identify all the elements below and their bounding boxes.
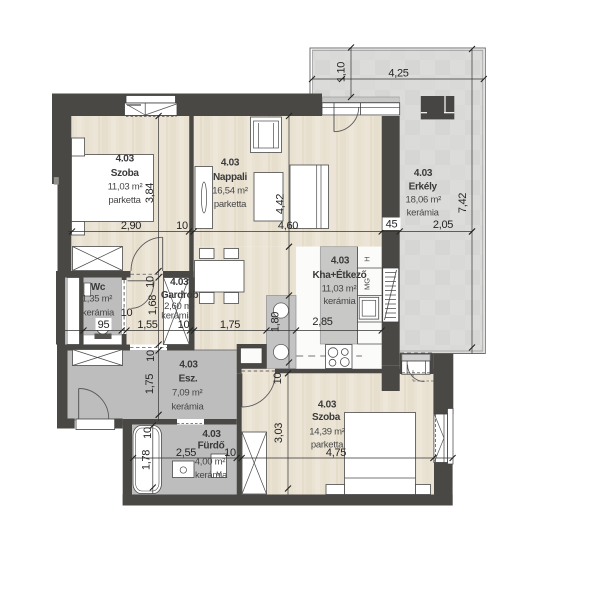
svg-text:kerámia: kerámia [323,296,356,307]
svg-text:1,35 m²: 1,35 m² [82,294,113,305]
svg-text:10: 10 [121,307,133,319]
svg-text:11,03 m²: 11,03 m² [108,182,143,193]
svg-text:parketta: parketta [311,440,344,451]
svg-text:H: H [363,256,372,261]
svg-text:4.03: 4.03 [221,158,240,169]
svg-text:4.03: 4.03 [170,277,189,288]
svg-text:4,00 m²: 4,00 m² [195,457,226,468]
svg-text:18,06 m²: 18,06 m² [406,195,442,206]
svg-text:Szoba: Szoba [111,168,140,179]
svg-text:1,80: 1,80 [270,312,282,332]
svg-text:kerámia: kerámia [171,402,204,413]
svg-text:parketta: parketta [108,195,141,206]
svg-text:Gardrób: Gardrób [161,290,199,301]
svg-text:kerámia: kerámia [161,311,194,322]
svg-text:4,25: 4,25 [388,68,408,80]
svg-text:4,60: 4,60 [278,220,298,232]
svg-text:2,05: 2,05 [433,219,453,231]
svg-text:3,84: 3,84 [144,183,156,203]
svg-text:10: 10 [145,350,157,362]
svg-text:1,75: 1,75 [220,319,240,331]
svg-text:Wc: Wc [91,282,106,293]
svg-text:2,85: 2,85 [312,316,332,328]
svg-text:4.03: 4.03 [179,360,198,371]
svg-text:3,03: 3,03 [273,423,285,443]
svg-text:1,68: 1,68 [147,295,159,315]
svg-text:Nappali: Nappali [213,172,248,183]
svg-text:1,10: 1,10 [336,62,348,82]
svg-text:4,42: 4,42 [275,194,287,214]
svg-text:45: 45 [386,219,398,231]
svg-text:Erkély: Erkély [409,182,438,193]
svg-text:Szoba: Szoba [312,412,341,423]
svg-text:7,09 m²: 7,09 m² [172,388,203,399]
svg-text:Esz.: Esz. [179,374,198,385]
svg-text:kerámia: kerámia [82,308,115,319]
svg-text:kerámia: kerámia [195,470,228,481]
svg-text:1,55: 1,55 [137,319,157,331]
svg-text:4.03: 4.03 [414,168,433,179]
svg-text:Kha+Étkező: Kha+Étkező [313,268,367,281]
svg-text:95: 95 [98,319,110,331]
svg-text:16,54 m²: 16,54 m² [212,186,248,197]
svg-text:kerámia: kerámia [407,208,440,219]
svg-text:10: 10 [176,220,188,232]
svg-text:Fürdő: Fürdő [198,441,225,452]
svg-text:parketta: parketta [214,199,247,210]
svg-text:1,78: 1,78 [141,450,153,470]
svg-text:4.03: 4.03 [331,256,350,267]
svg-text:4.03: 4.03 [116,154,135,165]
svg-text:14,39 m²: 14,39 m² [309,427,345,438]
svg-text:10: 10 [145,276,157,288]
svg-text:10: 10 [272,373,284,385]
svg-text:2,90: 2,90 [121,220,141,232]
svg-text:7,42: 7,42 [457,193,469,213]
svg-text:4.03: 4.03 [318,400,337,411]
svg-text:10: 10 [224,447,236,459]
svg-text:1,75: 1,75 [144,374,156,394]
svg-text:2,55: 2,55 [176,447,196,459]
svg-text:11,03 m²: 11,03 m² [322,284,357,295]
svg-text:10: 10 [142,427,154,439]
svg-text:4.03: 4.03 [202,429,221,440]
